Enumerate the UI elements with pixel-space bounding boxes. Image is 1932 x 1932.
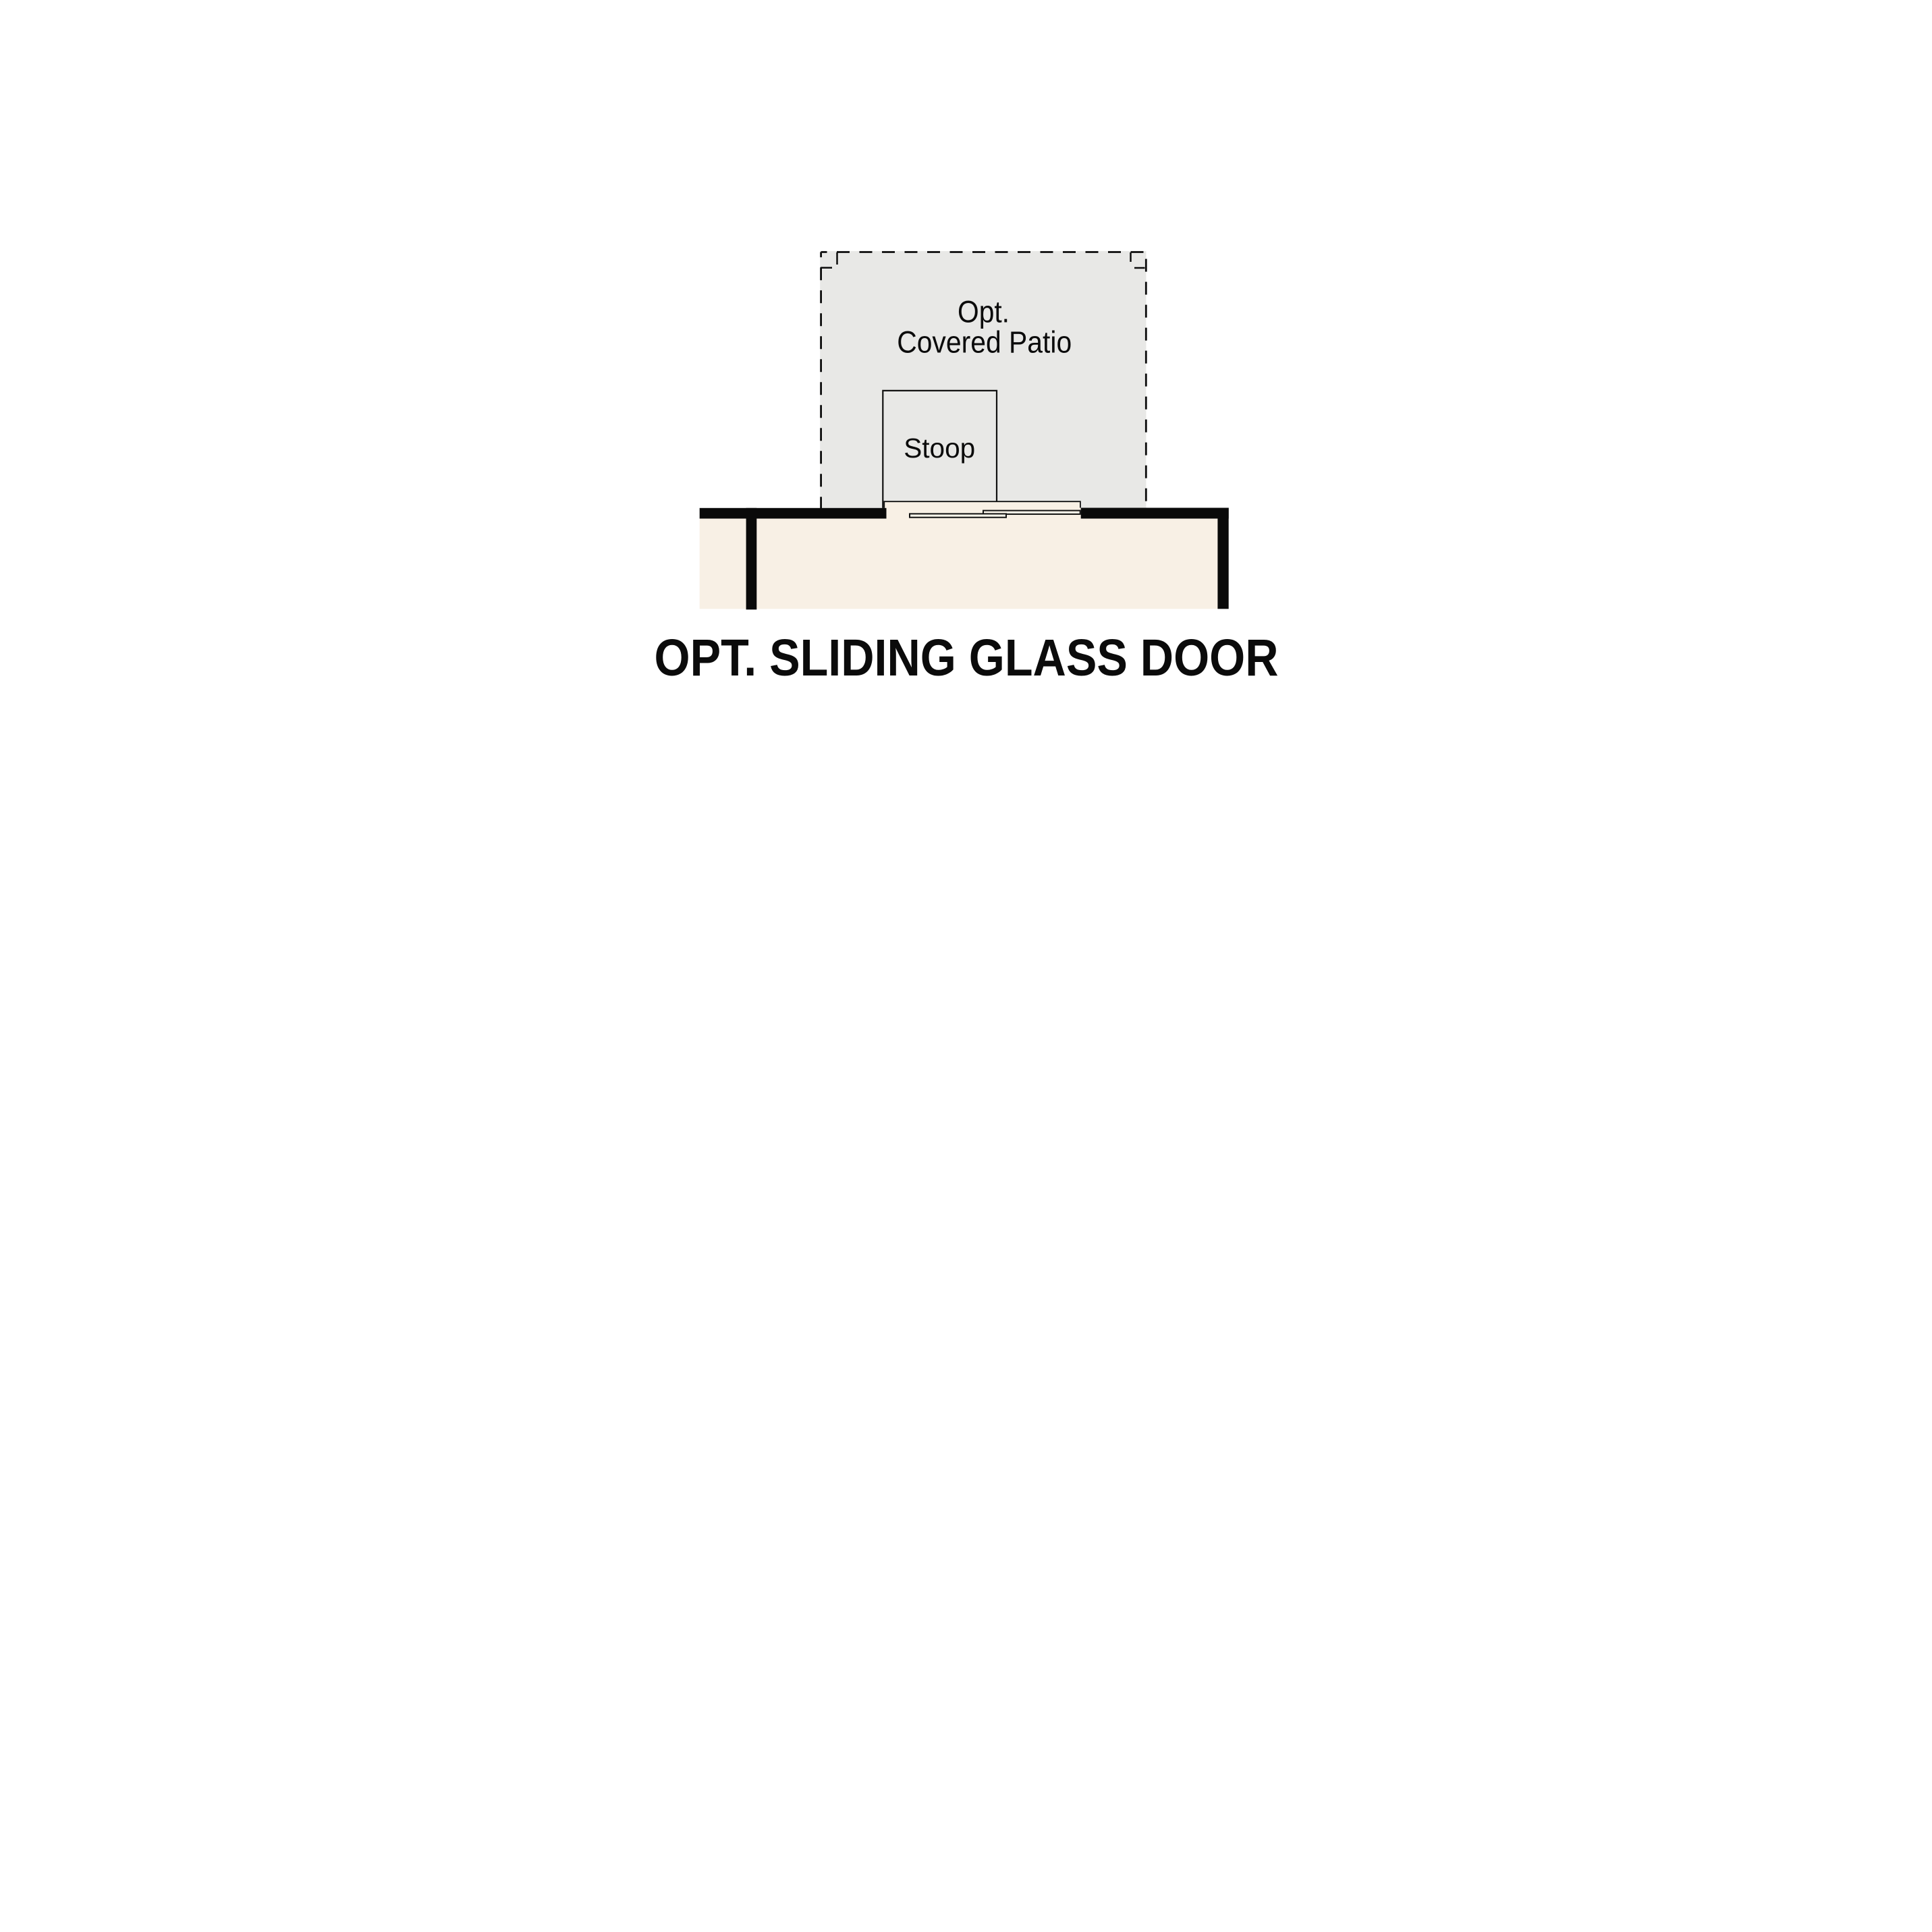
svg-text:OPT. SLIDING GLASS DOOR: OPT. SLIDING GLASS DOOR (655, 629, 1279, 687)
svg-text:Opt.: Opt. (958, 294, 1010, 329)
svg-text:Stoop: Stoop (904, 433, 975, 464)
svg-text:Covered Patio: Covered Patio (897, 325, 1072, 360)
